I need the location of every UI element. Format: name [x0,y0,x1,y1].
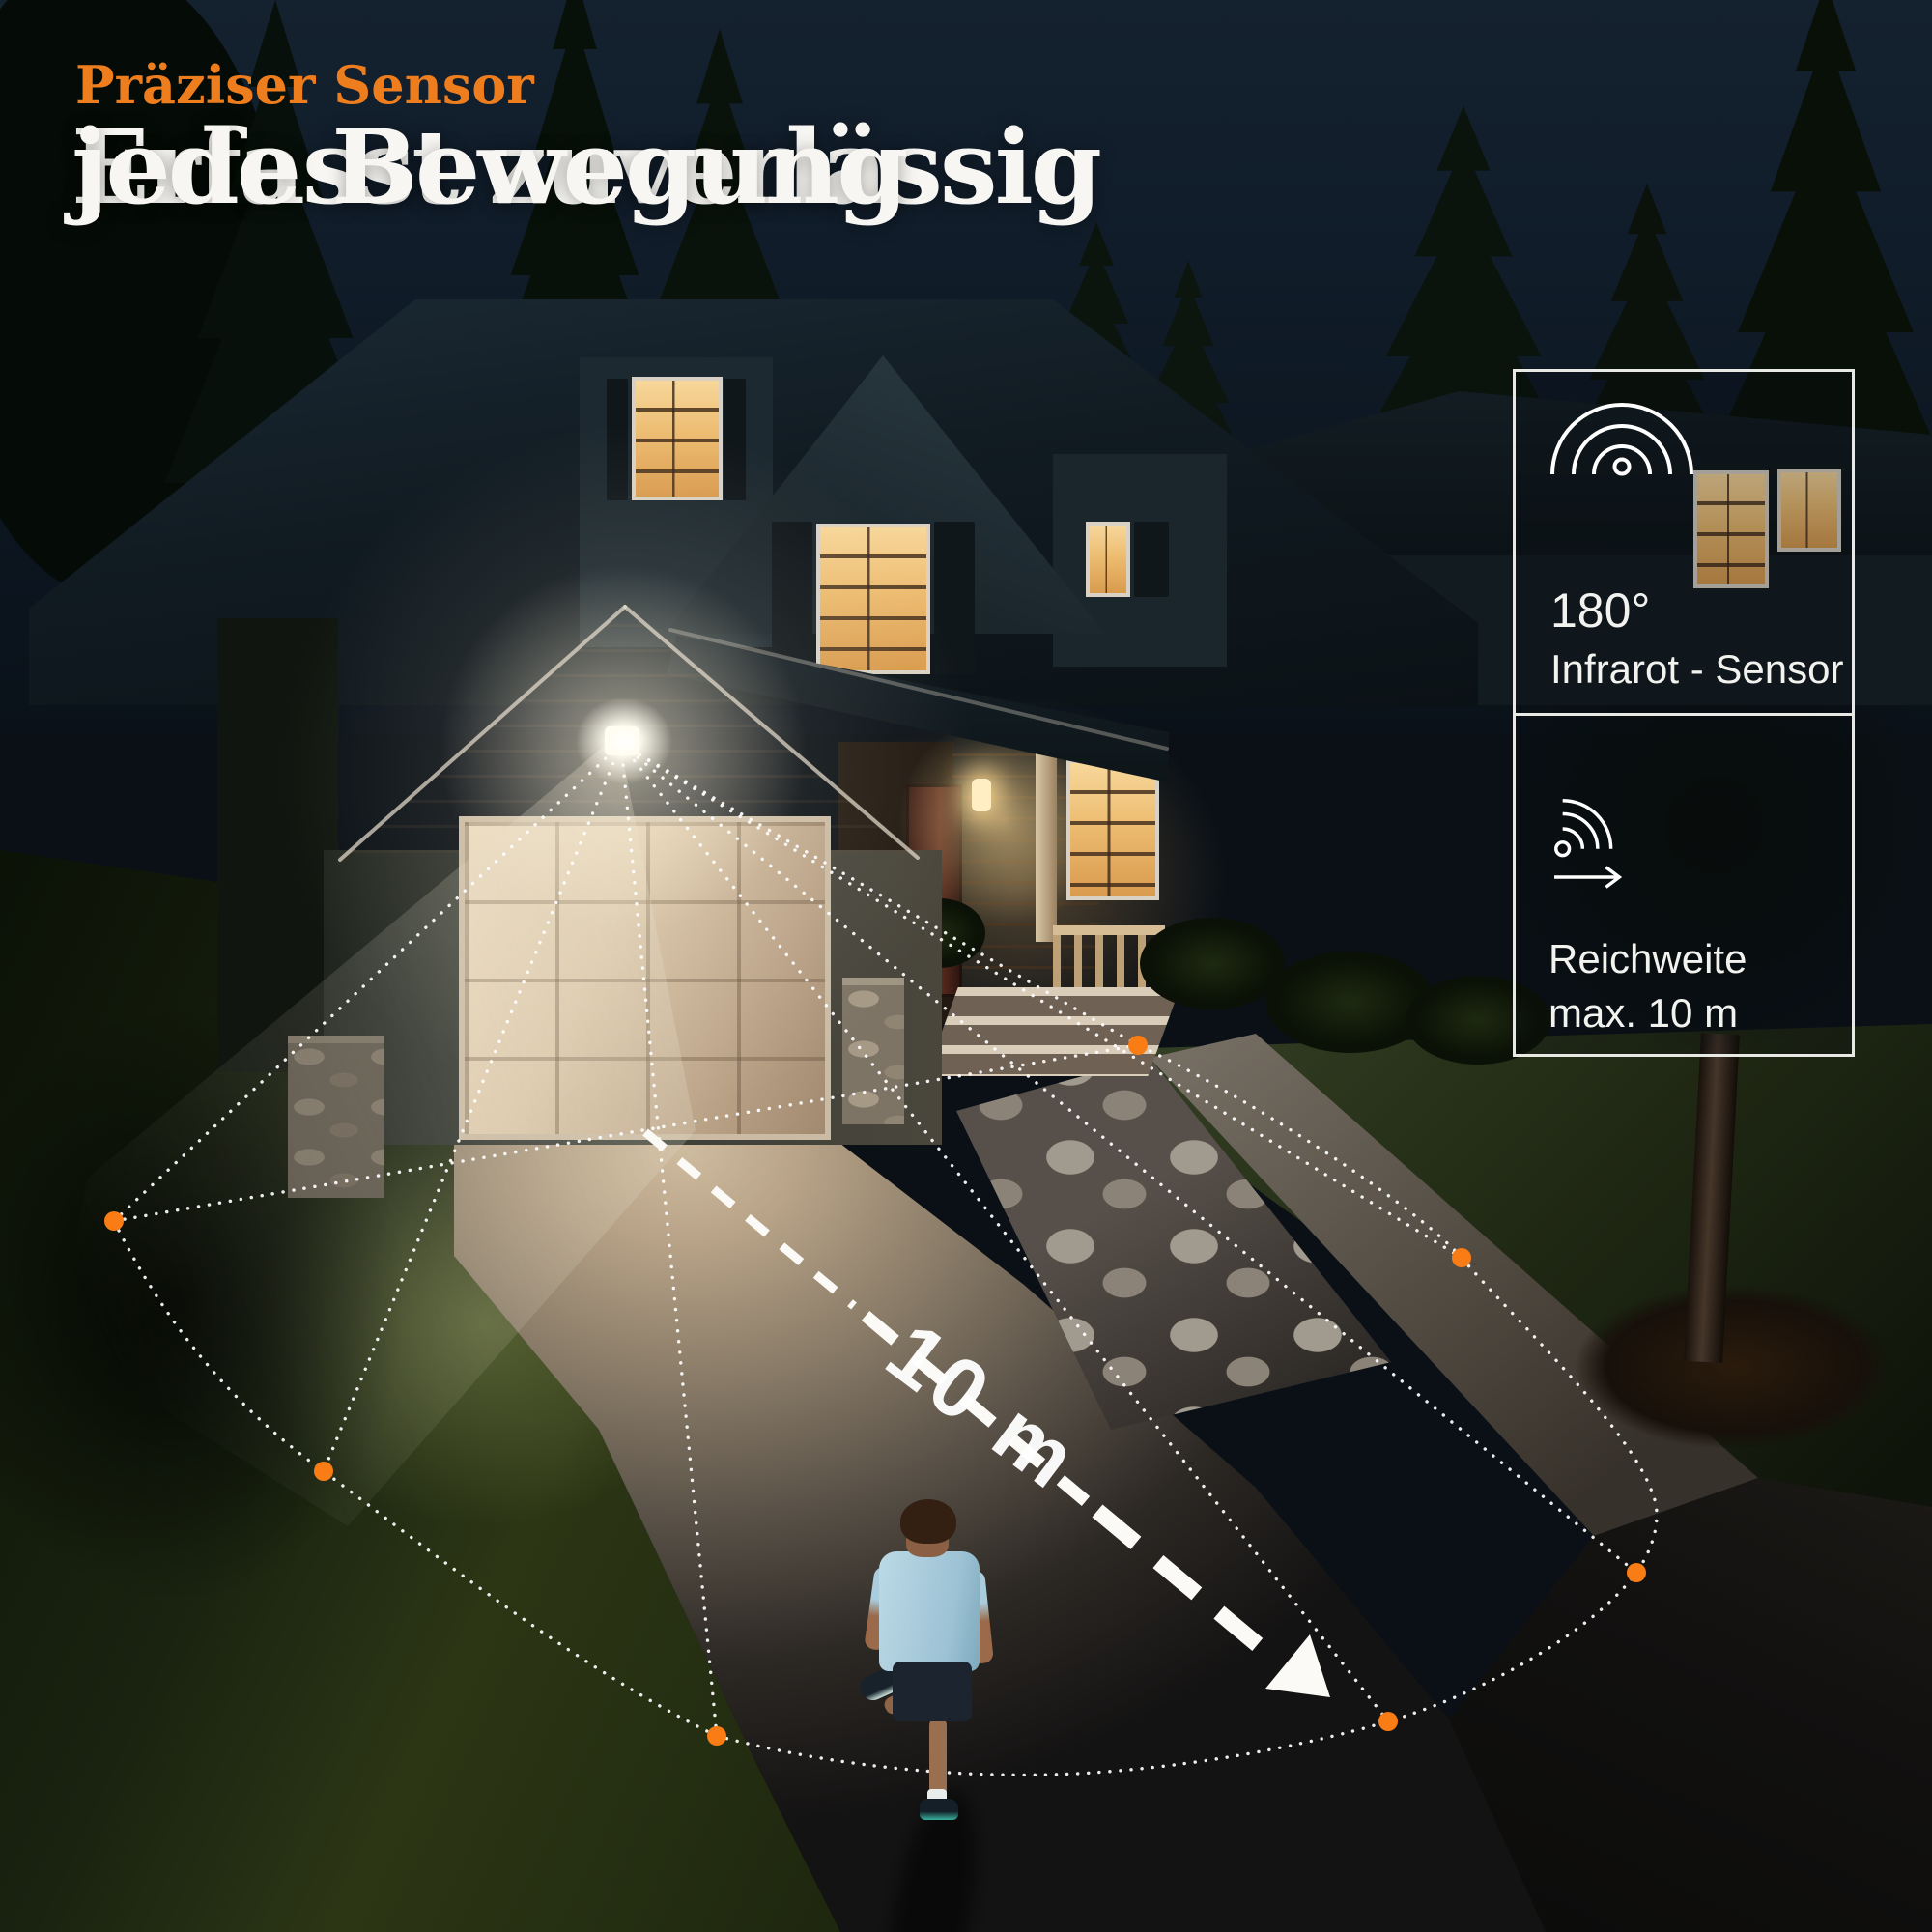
detection-dot [1378,1712,1398,1731]
running-child [867,1499,1003,1932]
roof-edge-line [670,630,1167,749]
spec-panel: 180° Infrarot - Sensor Reichweite max. 1… [1513,369,1855,1057]
sensor-ray [621,744,717,1736]
detection-dot [104,1211,124,1231]
child-shoe [920,1799,958,1820]
sensor-ray [324,744,621,1471]
headline-line-2: jede Bewegung [71,112,905,221]
range-arrow-icon [1550,799,1643,895]
zone-chord-line [114,1045,1138,1221]
spec-range-value: max. 10 m [1548,990,1738,1037]
spec-range-label: Reichweite [1548,936,1747,982]
panel-divider [1516,713,1852,716]
child-tshirt [879,1551,980,1671]
detection-dot [1128,1036,1148,1055]
spec-sensor-type: Infrarot - Sensor [1550,646,1843,693]
child-shorts [893,1662,972,1721]
sensor-ray [621,744,1138,1045]
sensor-arc-180-icon [1548,399,1693,480]
detection-dot [707,1726,726,1746]
detection-dot [1452,1248,1471,1267]
sensor-ray [621,744,1462,1258]
sensor-ray [621,744,1388,1721]
distance-arrow-segment [1097,1511,1273,1658]
sensor-ray [621,744,1636,1573]
marketing-image: 10 m 180° Infrarot - Sensor [0,0,1932,1932]
sensor-ray [114,744,621,1221]
spec-angle-value: 180° [1550,582,1650,639]
light-glow-core [576,697,672,784]
detection-dot [1627,1563,1646,1582]
child-leg [929,1718,947,1799]
distance-arrow-segment [645,1132,854,1306]
child-hair [900,1499,956,1544]
arrowhead-icon [1265,1634,1330,1697]
roof-edge-lines [340,607,1167,860]
detection-dot [314,1462,333,1481]
